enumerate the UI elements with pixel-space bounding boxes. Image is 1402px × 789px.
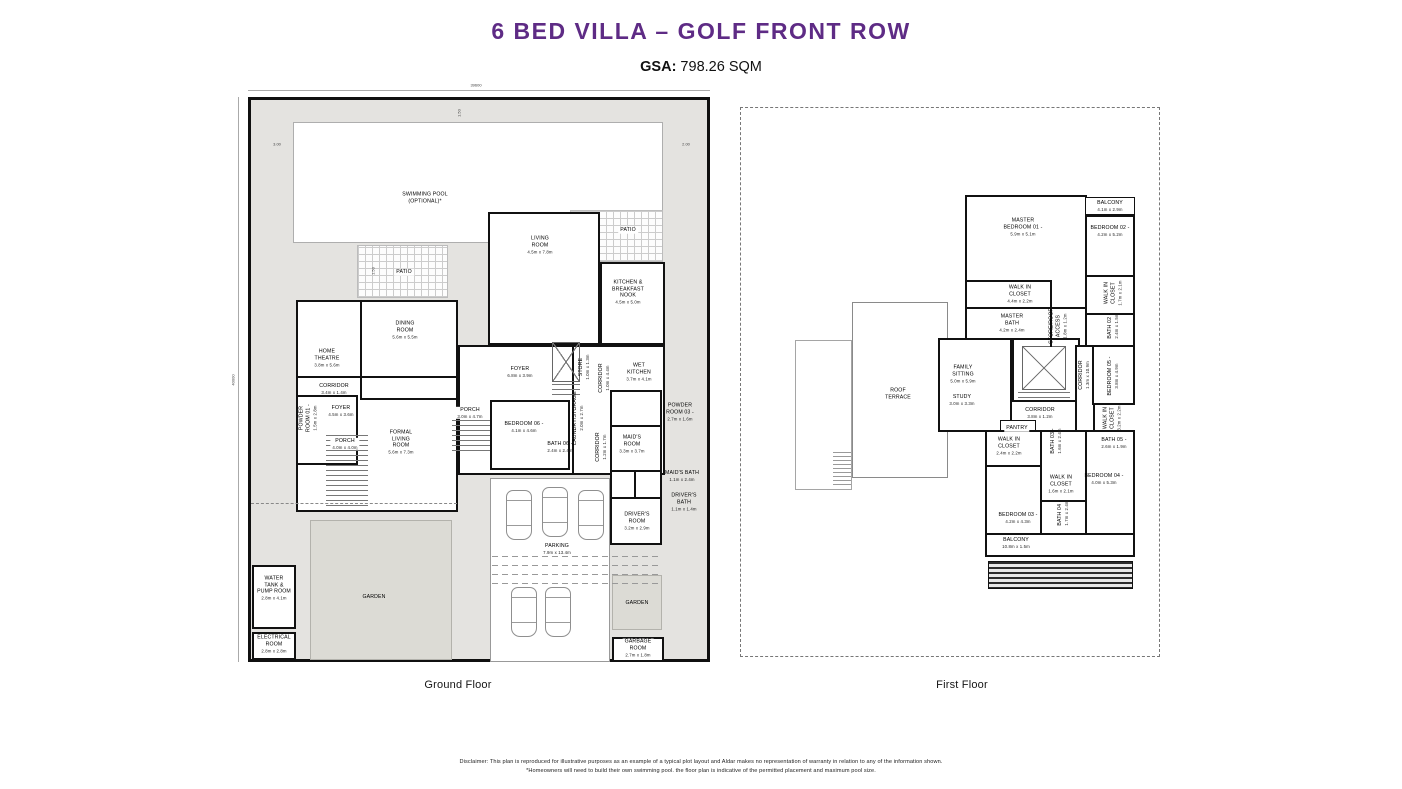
kitchen-block bbox=[600, 262, 665, 345]
dimension-line-left bbox=[238, 97, 239, 662]
service-block bbox=[610, 390, 662, 545]
bedroom02-block bbox=[1085, 215, 1135, 347]
plan-wall bbox=[965, 280, 1052, 282]
garbage-room bbox=[612, 637, 664, 662]
stairs-treads bbox=[1018, 392, 1070, 400]
gsa-label: GSA: bbox=[640, 59, 676, 75]
plan-wall bbox=[610, 425, 662, 427]
car bbox=[545, 587, 571, 637]
car bbox=[511, 587, 537, 637]
setback-dashed-line bbox=[251, 503, 457, 504]
bedroom05-block bbox=[1092, 345, 1135, 405]
car bbox=[578, 490, 604, 540]
plan-wall bbox=[1085, 313, 1135, 315]
plan-wall bbox=[965, 307, 1087, 309]
porch-steps-right bbox=[452, 420, 490, 455]
disclaimer-line1: Disclaimer: This plan is reproduced for … bbox=[0, 759, 1402, 765]
plan-wall bbox=[1040, 500, 1085, 502]
stairs bbox=[1022, 346, 1066, 390]
water-tank-room bbox=[252, 565, 296, 629]
family-sitting-block bbox=[938, 338, 1012, 432]
balcony-top bbox=[1085, 197, 1135, 215]
porch-steps-left bbox=[326, 435, 368, 507]
master-suite-block bbox=[965, 195, 1087, 347]
balcony-bottom bbox=[985, 533, 1135, 557]
roof-terrace bbox=[852, 302, 948, 478]
plan-wall bbox=[1085, 275, 1135, 277]
page-title: 6 BED VILLA – GOLF FRONT ROW bbox=[0, 18, 1402, 45]
stairs bbox=[552, 342, 580, 382]
title-subtitle: GOLF FRONT ROW bbox=[678, 18, 911, 44]
plan-wall bbox=[360, 300, 362, 398]
plan-wall bbox=[296, 376, 458, 378]
plan-wall bbox=[1085, 430, 1087, 535]
gsa-value: 798.26 SQM bbox=[676, 59, 761, 75]
plan-wall bbox=[610, 497, 662, 499]
plan-wall bbox=[610, 470, 662, 472]
car bbox=[542, 487, 568, 537]
living-room-block bbox=[488, 212, 600, 345]
plan-wall bbox=[1040, 430, 1042, 535]
dimension-line-top bbox=[248, 90, 710, 91]
ground-floor-caption: Ground Floor bbox=[424, 679, 491, 691]
stairs-treads bbox=[552, 384, 580, 396]
dimension-label: 40000 bbox=[231, 374, 236, 385]
terrace-stairs bbox=[833, 452, 851, 486]
pergola-louvers bbox=[988, 561, 1133, 589]
plan-wall bbox=[1050, 280, 1052, 347]
first-floor-caption: First Floor bbox=[936, 679, 988, 691]
title-main: 6 BED VILLA bbox=[491, 18, 647, 44]
patio-left bbox=[357, 245, 448, 298]
plan-wall bbox=[360, 398, 458, 400]
floor-plan-page: 6 BED VILLA – GOLF FRONT ROW GSA: 798.26… bbox=[0, 0, 1402, 789]
title-separator: – bbox=[648, 18, 678, 44]
bedroom06-walls bbox=[490, 400, 570, 470]
garden-left bbox=[310, 520, 452, 660]
car bbox=[506, 490, 532, 540]
bedrooms-block bbox=[985, 430, 1135, 535]
plan-wall bbox=[1092, 403, 1135, 405]
electrical-room bbox=[252, 632, 296, 660]
disclaimer-line2: *Homeowners will need to build their own… bbox=[0, 768, 1402, 774]
plan-wall bbox=[985, 465, 1040, 467]
dimension-label: 39600 bbox=[470, 83, 481, 88]
plan-wall bbox=[634, 470, 636, 497]
gsa-line: GSA: 798.26 SQM bbox=[0, 59, 1402, 75]
driveway-hatch bbox=[492, 556, 658, 590]
